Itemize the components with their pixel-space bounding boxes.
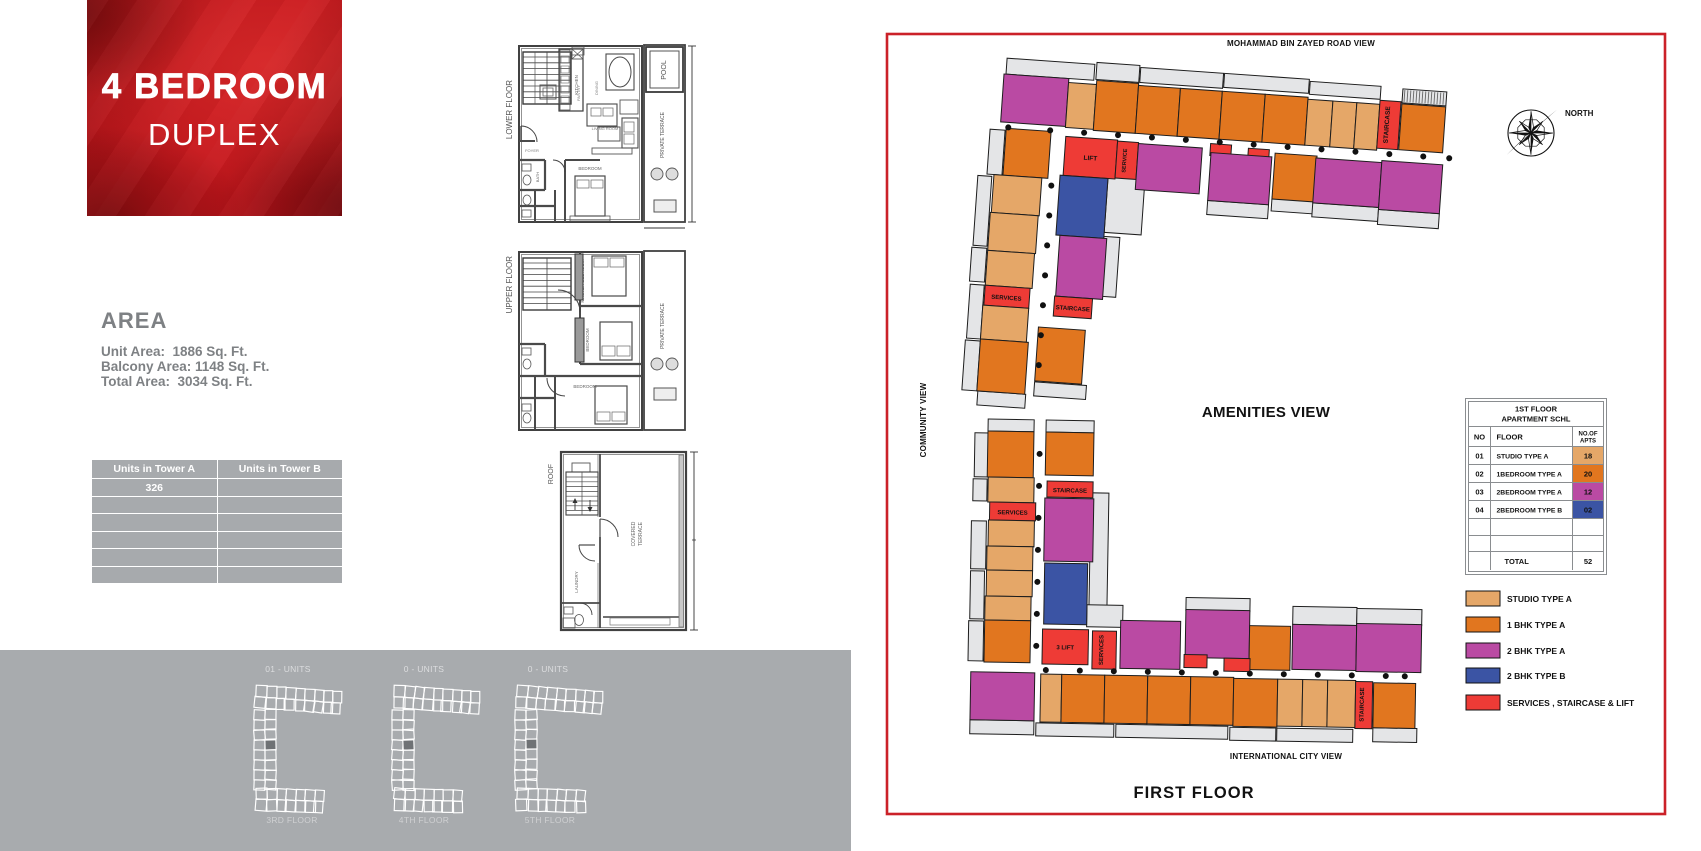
svg-text:0 - UNITS: 0 - UNITS xyxy=(528,664,569,674)
svg-text:APTS: APTS xyxy=(1580,439,1596,445)
svg-text:2BEDROOM TYPE B: 2BEDROOM TYPE B xyxy=(1497,508,1563,515)
svg-text:LIFT: LIFT xyxy=(1083,155,1097,163)
svg-text:APARTMENT SCHL: APARTMENT SCHL xyxy=(1501,415,1570,424)
svg-text:BEDROOM: BEDROOM xyxy=(573,384,597,389)
svg-text:FIRST FLOOR: FIRST FLOOR xyxy=(1134,784,1255,802)
svg-text:1 BHK TYPE A: 1 BHK TYPE A xyxy=(1507,620,1565,630)
svg-text:04: 04 xyxy=(1475,506,1484,515)
svg-text:5TH FLOOR: 5TH FLOOR xyxy=(525,815,575,825)
svg-text:INTERNATIONAL CITY VIEW: INTERNATIONAL CITY VIEW xyxy=(1230,752,1342,761)
svg-text:02: 02 xyxy=(1475,470,1483,479)
svg-text:2BEDROOM TYPE A: 2BEDROOM TYPE A xyxy=(1497,490,1563,497)
svg-text:POOL: POOL xyxy=(661,60,668,80)
svg-text:3 LIFT: 3 LIFT xyxy=(1056,645,1074,651)
svg-text:STAIRCASE: STAIRCASE xyxy=(1053,488,1087,495)
svg-text:LOWER FLOOR: LOWER FLOOR xyxy=(505,80,514,139)
svg-text:SERVICES: SERVICES xyxy=(997,510,1027,517)
svg-text:DINING: DINING xyxy=(594,81,599,95)
svg-text:03: 03 xyxy=(1475,488,1483,497)
svg-text:1ST FLOOR: 1ST FLOOR xyxy=(1515,405,1558,414)
svg-text:ROOF: ROOF xyxy=(548,464,555,484)
svg-text:01 - UNITS: 01 - UNITS xyxy=(265,664,311,674)
svg-text:BEDROOM: BEDROOM xyxy=(578,166,602,171)
svg-text:01: 01 xyxy=(1475,452,1483,461)
svg-text:NO.OF: NO.OF xyxy=(1579,432,1598,438)
svg-text:2 BHK TYPE A: 2 BHK TYPE A xyxy=(1507,646,1565,656)
svg-text:12: 12 xyxy=(1584,488,1592,497)
svg-text:TOTAL: TOTAL xyxy=(1505,557,1530,566)
svg-text:STUDIO TYPE A: STUDIO TYPE A xyxy=(1497,454,1549,461)
svg-text:NO: NO xyxy=(1474,433,1485,442)
svg-text:2 BHK TYPE B: 2 BHK TYPE B xyxy=(1507,671,1566,681)
svg-text:3RD FLOOR: 3RD FLOOR xyxy=(266,815,317,825)
svg-text:PRIVATE TERRACE: PRIVATE TERRACE xyxy=(660,302,666,349)
svg-text:SERVICES: SERVICES xyxy=(1099,635,1106,665)
svg-text:FOYER: FOYER xyxy=(525,148,539,153)
svg-text:UPPER FLOOR: UPPER FLOOR xyxy=(505,256,514,314)
svg-text:LAUNDRY: LAUNDRY xyxy=(574,571,579,592)
svg-text:18: 18 xyxy=(1584,452,1592,461)
svg-text:0 - UNITS: 0 - UNITS xyxy=(404,664,445,674)
svg-text:STAIRCASE: STAIRCASE xyxy=(1359,687,1366,721)
svg-text:BATH: BATH xyxy=(535,172,540,182)
svg-text:KITCHEN: KITCHEN xyxy=(574,75,579,95)
svg-text:52: 52 xyxy=(1584,557,1592,566)
svg-text:COVERED: COVERED xyxy=(631,521,637,546)
svg-text:20: 20 xyxy=(1584,470,1592,479)
svg-text:02: 02 xyxy=(1584,506,1592,515)
svg-text:MOHAMMAD BIN ZAYED ROAD VIEW: MOHAMMAD BIN ZAYED ROAD VIEW xyxy=(1227,39,1375,48)
svg-text:BEDROOM: BEDROOM xyxy=(585,328,590,352)
svg-text:4TH FLOOR: 4TH FLOOR xyxy=(399,815,449,825)
svg-text:1BEDROOM TYPE A: 1BEDROOM TYPE A xyxy=(1497,472,1563,479)
svg-text:AMENITIES VIEW: AMENITIES VIEW xyxy=(1202,404,1331,421)
svg-text:FLOOR: FLOOR xyxy=(1497,433,1524,442)
svg-text:TERRACE: TERRACE xyxy=(638,521,644,546)
svg-text:STUDIO TYPE A: STUDIO TYPE A xyxy=(1507,594,1572,604)
svg-text:PRIVATE TERRACE: PRIVATE TERRACE xyxy=(660,111,666,158)
svg-text:COMMUNITY VIEW: COMMUNITY VIEW xyxy=(919,382,928,457)
svg-text:NORTH: NORTH xyxy=(1565,109,1594,118)
svg-text:SERVICES , STAIRCASE & LIFT: SERVICES , STAIRCASE & LIFT xyxy=(1507,698,1635,708)
